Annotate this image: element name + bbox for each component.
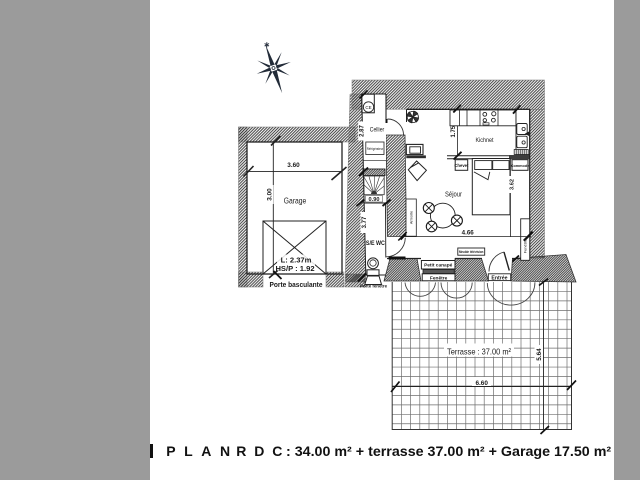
svg-text:Fenêtre: Fenêtre	[523, 239, 528, 254]
svg-text:Petit canapé: Petit canapé	[424, 263, 453, 269]
svg-text:Kichnet: Kichnet	[476, 137, 494, 144]
svg-text:5.64: 5.64	[536, 348, 543, 361]
svg-text:2.87: 2.87	[360, 125, 366, 137]
svg-text:Porte basculante: Porte basculante	[270, 282, 323, 289]
svg-text:Porte fenêtre: Porte fenêtre	[360, 284, 388, 289]
svg-text:3.60: 3.60	[287, 162, 300, 169]
svg-text:CE: CE	[365, 105, 371, 110]
svg-text:Entrée: Entrée	[491, 275, 507, 281]
svg-text:Commode: Commode	[511, 164, 530, 168]
svg-text:Chevet: Chevet	[454, 163, 469, 168]
svg-text:HS/P : 1.92: HS/P : 1.92	[275, 264, 314, 273]
svg-text:S/E WC: S/E WC	[366, 240, 385, 247]
svg-text:Meuble télévision: Meuble télévision	[459, 250, 484, 254]
svg-text:4.66: 4.66	[462, 229, 475, 236]
svg-text:1.75: 1.75	[451, 125, 457, 137]
svg-text:Fenêtre: Fenêtre	[430, 275, 448, 281]
svg-text:6.60: 6.60	[475, 380, 488, 387]
svg-text:Cellier: Cellier	[370, 127, 385, 133]
svg-text:3.62: 3.62	[509, 179, 515, 190]
svg-text:3.77: 3.77	[362, 216, 368, 228]
svg-text:3.00: 3.00	[267, 188, 274, 201]
svg-text:Garage: Garage	[284, 197, 307, 206]
svg-text:0.90: 0.90	[369, 197, 380, 203]
svg-text:Séjour: Séjour	[445, 189, 462, 198]
svg-text:Réfrigérateur: Réfrigérateur	[367, 147, 384, 151]
svg-text:Terrasse : 37.00 m²: Terrasse : 37.00 m²	[447, 346, 511, 356]
svg-text:Armoire: Armoire	[409, 211, 413, 224]
